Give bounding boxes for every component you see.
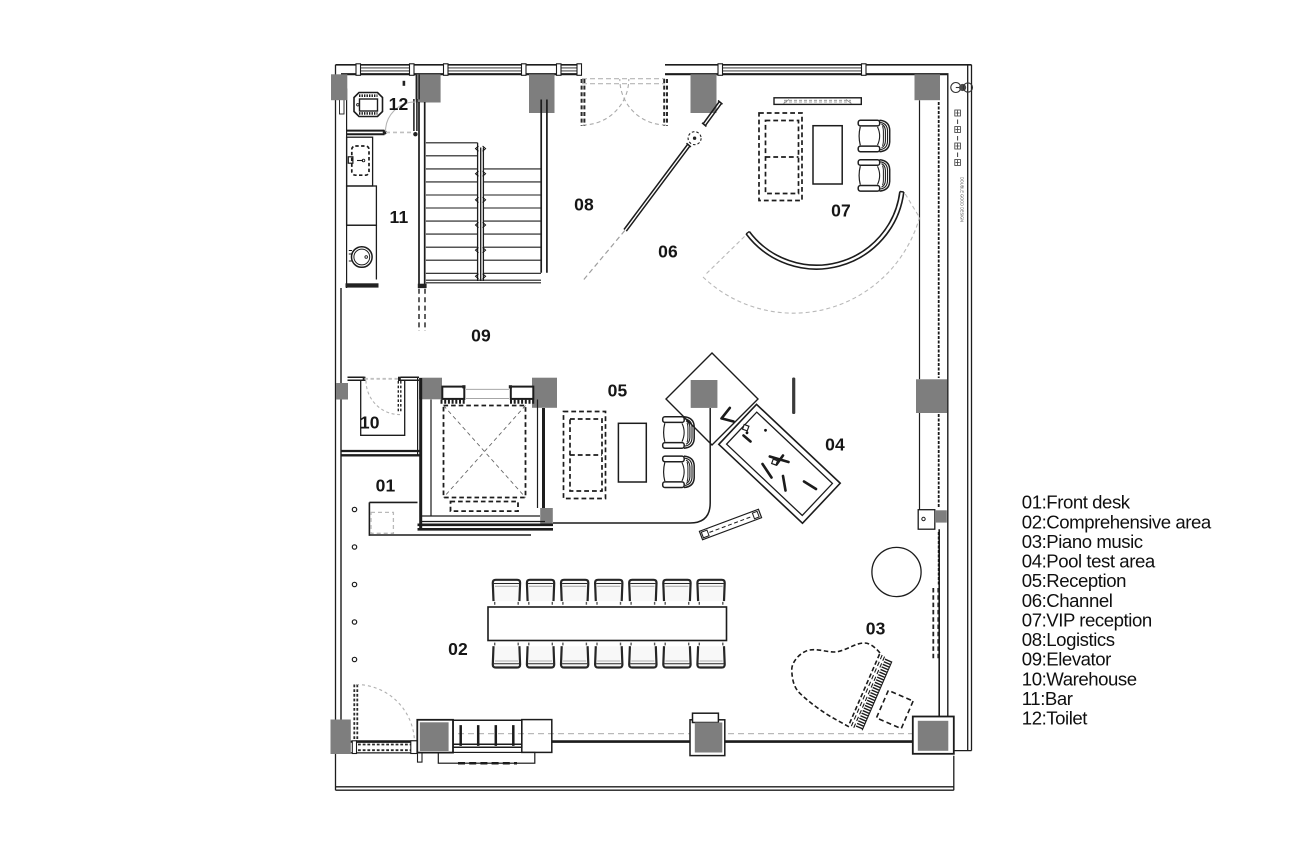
- svg-text:02: 02: [448, 639, 468, 659]
- svg-text:01: 01: [376, 475, 396, 495]
- svg-text:09:Elevator: 09:Elevator: [1022, 649, 1111, 670]
- svg-text:01:Front desk: 01:Front desk: [1022, 492, 1131, 513]
- svg-text:10:Warehouse: 10:Warehouse: [1022, 668, 1137, 689]
- svg-text:09: 09: [471, 325, 491, 345]
- svg-text:06: 06: [658, 241, 678, 261]
- svg-text:11: 11: [390, 207, 409, 227]
- svg-text:04:Pool test area: 04:Pool test area: [1022, 551, 1156, 572]
- svg-text:12: 12: [389, 94, 409, 114]
- svg-text:03:Piano music: 03:Piano music: [1022, 531, 1143, 552]
- svg-text:10: 10: [360, 412, 380, 432]
- svg-text:04: 04: [825, 434, 845, 454]
- svg-text:08:Logistics: 08:Logistics: [1022, 629, 1115, 650]
- svg-text:07: 07: [831, 200, 851, 220]
- svg-text:11:Bar: 11:Bar: [1022, 688, 1073, 709]
- svg-text:05:Reception: 05:Reception: [1022, 570, 1126, 591]
- svg-text:05: 05: [608, 380, 628, 400]
- svg-text:DOUBLE GOOD DESIGN: DOUBLE GOOD DESIGN: [960, 177, 965, 222]
- svg-text:07:VIP reception: 07:VIP reception: [1022, 610, 1152, 631]
- svg-text:06:Channel: 06:Channel: [1022, 590, 1113, 611]
- svg-text:08: 08: [574, 194, 594, 214]
- svg-text:03: 03: [866, 618, 886, 638]
- svg-text:12:Toilet: 12:Toilet: [1022, 708, 1088, 729]
- svg-text:02:Comprehensive area: 02:Comprehensive area: [1022, 511, 1212, 532]
